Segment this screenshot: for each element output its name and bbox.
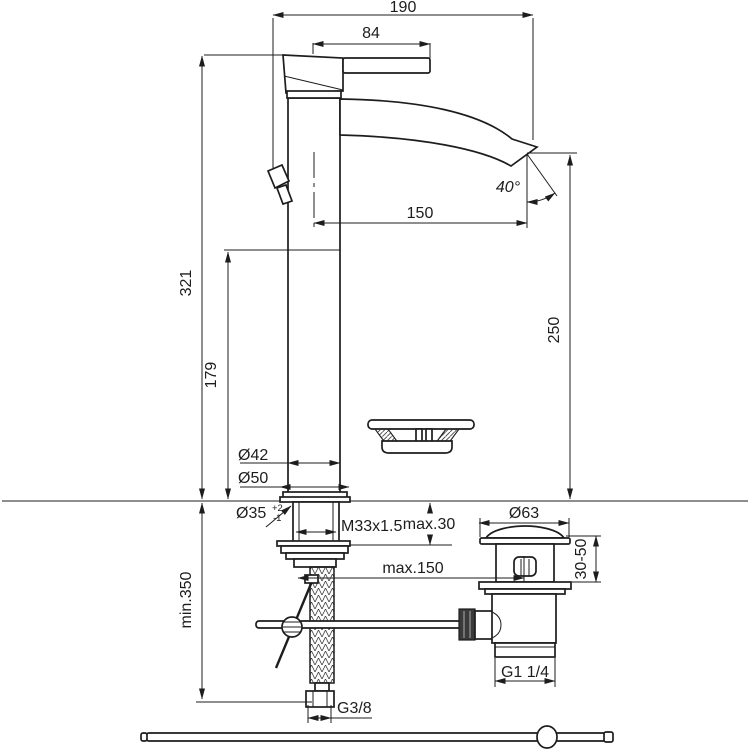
dim-waste-outlet-thread: G1 1/4 [495,658,555,687]
pull-rod-ball [537,726,557,748]
dim-waste-outlet-thread-label: G1 1/4 [501,664,549,681]
dim-hole-diameter-label: Ø35 [236,505,266,522]
dim-max-deck-thickness-label: max.30 [403,516,456,533]
waste-lower-body [492,594,556,643]
threaded-shank [293,502,339,545]
faucet-outline [268,55,537,567]
dim-basin-thickness-range-label: 30-50 [573,538,590,579]
dim-lever-length: 84 [313,25,430,58]
dim-min-hose-length: min.350 [178,503,312,702]
dim-basin-thickness-range: 30-50 [566,536,601,582]
dim-shank-thread-label: M33x1.5 [341,518,402,535]
hose-end-tube [315,683,329,691]
pop-up-rod-pivot [305,575,318,583]
waste-dome-cap [486,526,564,538]
angle-arc [527,193,555,202]
faucet-lever-handle [343,58,430,73]
dim-body-height-label: 179 [203,362,220,389]
dim-min-hose-length-label: min.350 [178,571,195,628]
hose-reducer [294,559,336,567]
dim-overall-width-label: 190 [390,0,417,16]
technical-drawing-page: 190 84 321 179 250 150 40° min.350 [0,0,750,750]
dim-overall-height: 321 [178,55,284,499]
faucet-neck-ring [287,91,341,98]
pull-rod-end-left [141,733,147,741]
faucet-lever-cap [283,55,343,93]
faucet-technical-drawing: 190 84 321 179 250 150 40° min.350 [0,0,750,750]
pull-rod-end-right [604,732,613,742]
dim-overall-height-label: 321 [178,270,195,297]
locknut [281,546,348,553]
rod-coupler-sleeve [475,611,494,639]
waste-tailpiece [495,643,555,657]
locknut-lower [286,553,344,559]
stopper-plate [368,420,474,429]
rod-coupler-dark [459,609,475,640]
angle-ref-line [527,154,557,196]
drain-waste-assembly [479,526,571,657]
pop-up-rod-linkage [256,575,494,668]
dim-body-diameter-label: Ø42 [238,447,268,464]
dim-hose-thread-label: G3/8 [337,700,372,717]
dim-base-diameter-label: Ø50 [238,470,268,487]
dim-outlet-height: 250 [527,153,577,499]
waste-top-flange [480,538,570,544]
dim-outlet-height-label: 250 [546,317,563,344]
hose-end-nut [306,691,334,707]
dim-max-rod-distance-label: max.150 [382,560,443,577]
dim-hole-diameter: Ø35 +2 -1 [236,503,291,527]
stopper-cap-part [368,420,474,453]
dim-lever-length-label: 84 [362,25,380,42]
stopper-cup [382,441,452,453]
dim-spout-angle-label: 40° [496,179,521,196]
dim-spout-reach-label: 150 [407,205,434,222]
clicker-mechanism [514,557,536,576]
waste-lower-flange [479,582,571,589]
pull-rod-part [141,726,613,748]
dim-waste-flange-diameter-label: Ø63 [509,505,539,522]
faucet-spout [340,99,537,166]
